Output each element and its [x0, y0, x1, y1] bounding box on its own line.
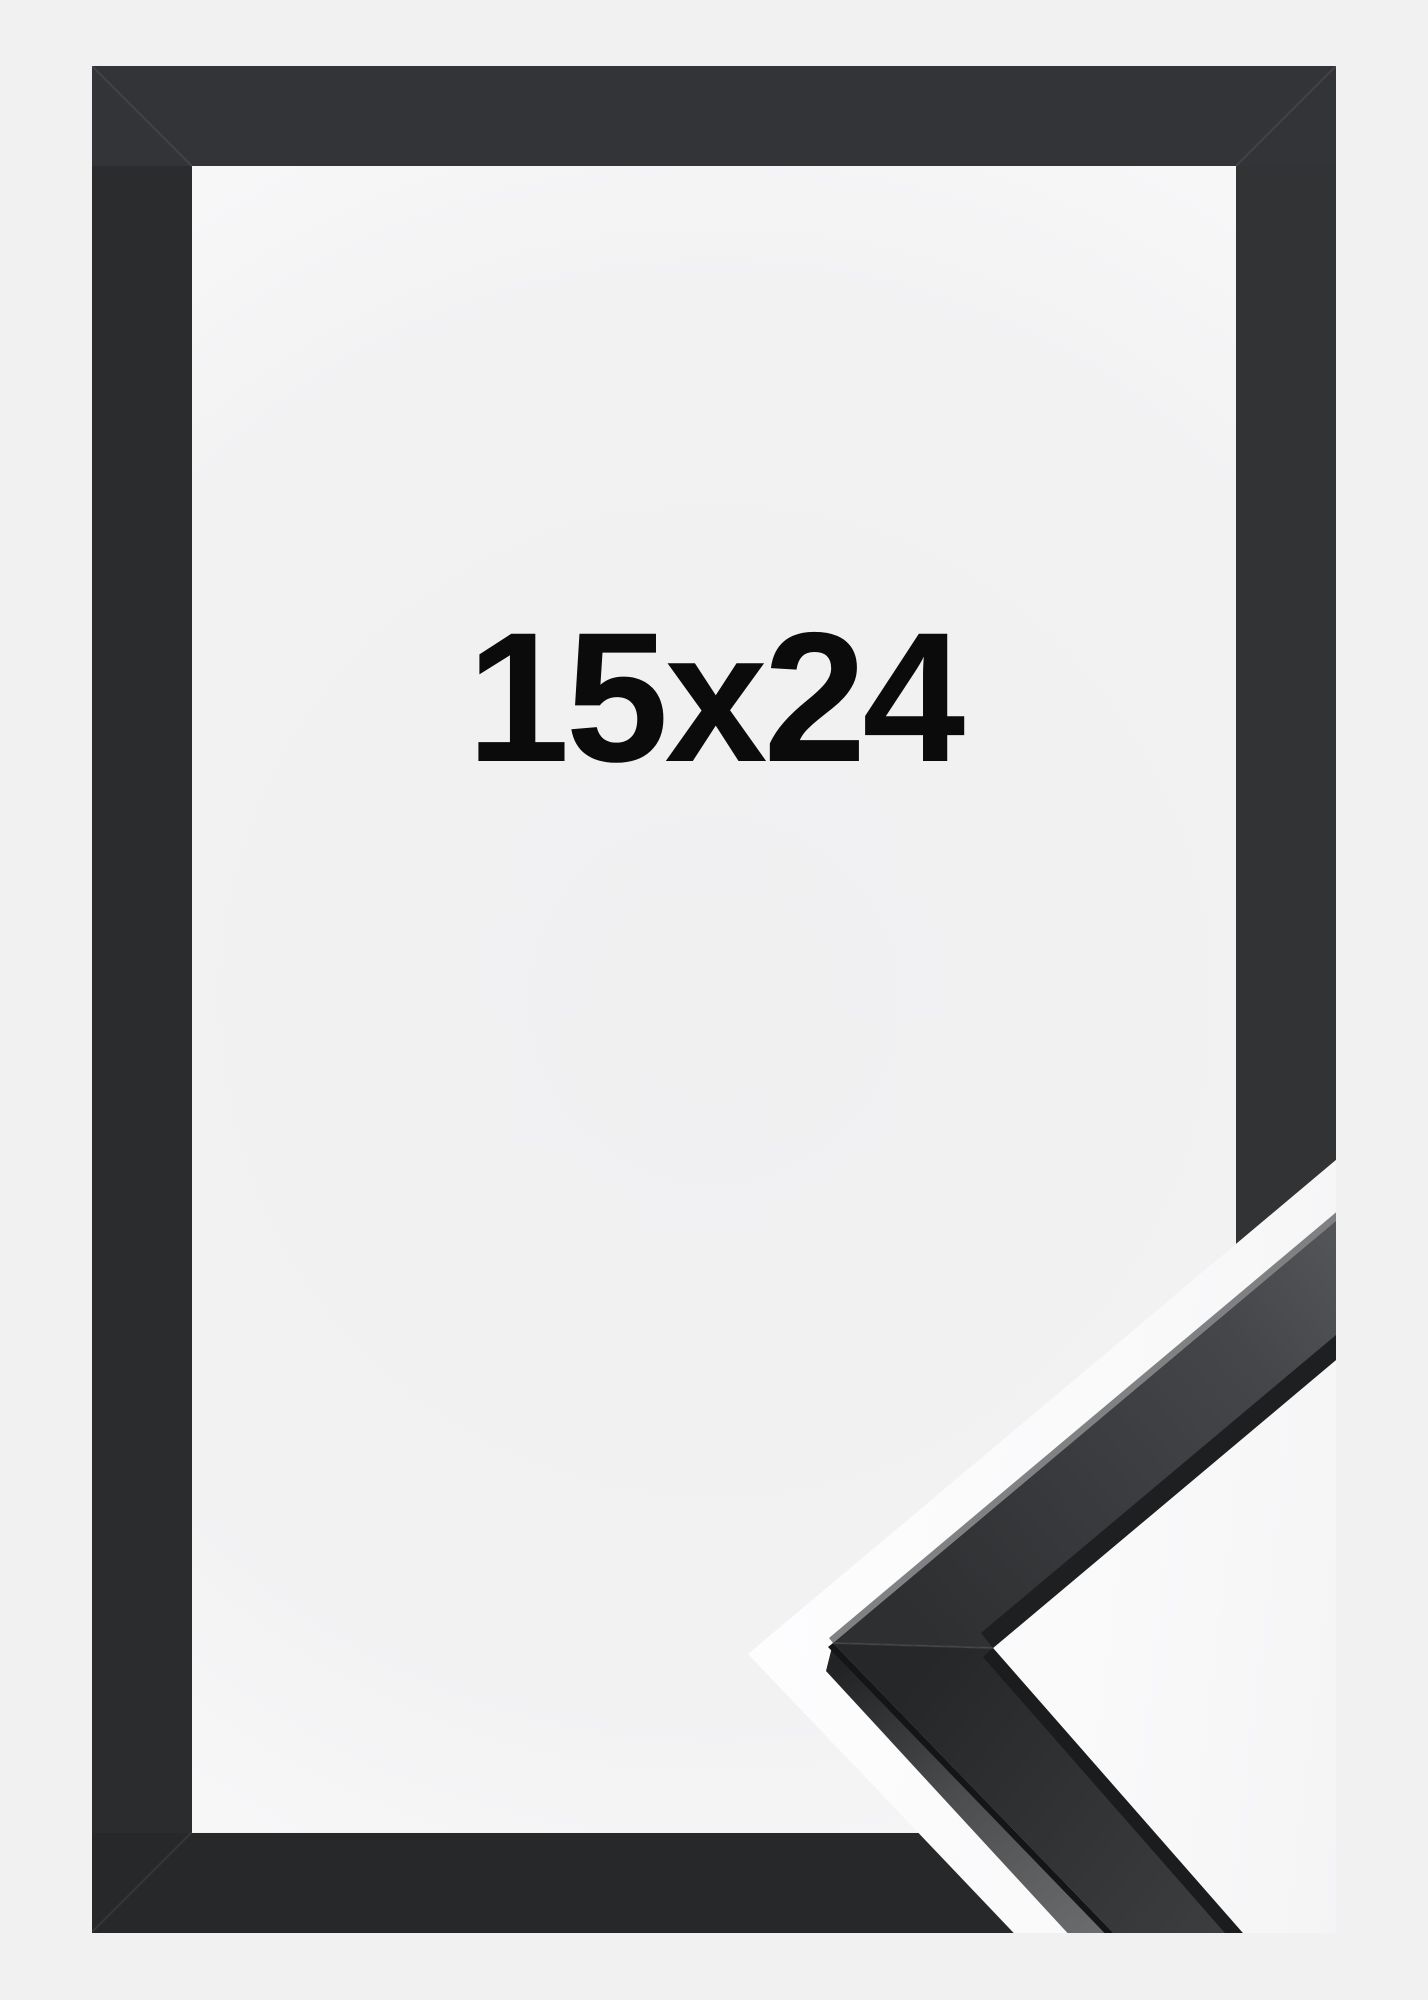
frame-left-bar: [92, 66, 192, 1933]
frame-photo-graphic: [0, 0, 1428, 2000]
frame-top-bar: [92, 66, 1336, 166]
size-label: 15x24: [0, 606, 1428, 791]
frame-product-photo: 15x24: [0, 0, 1428, 2000]
